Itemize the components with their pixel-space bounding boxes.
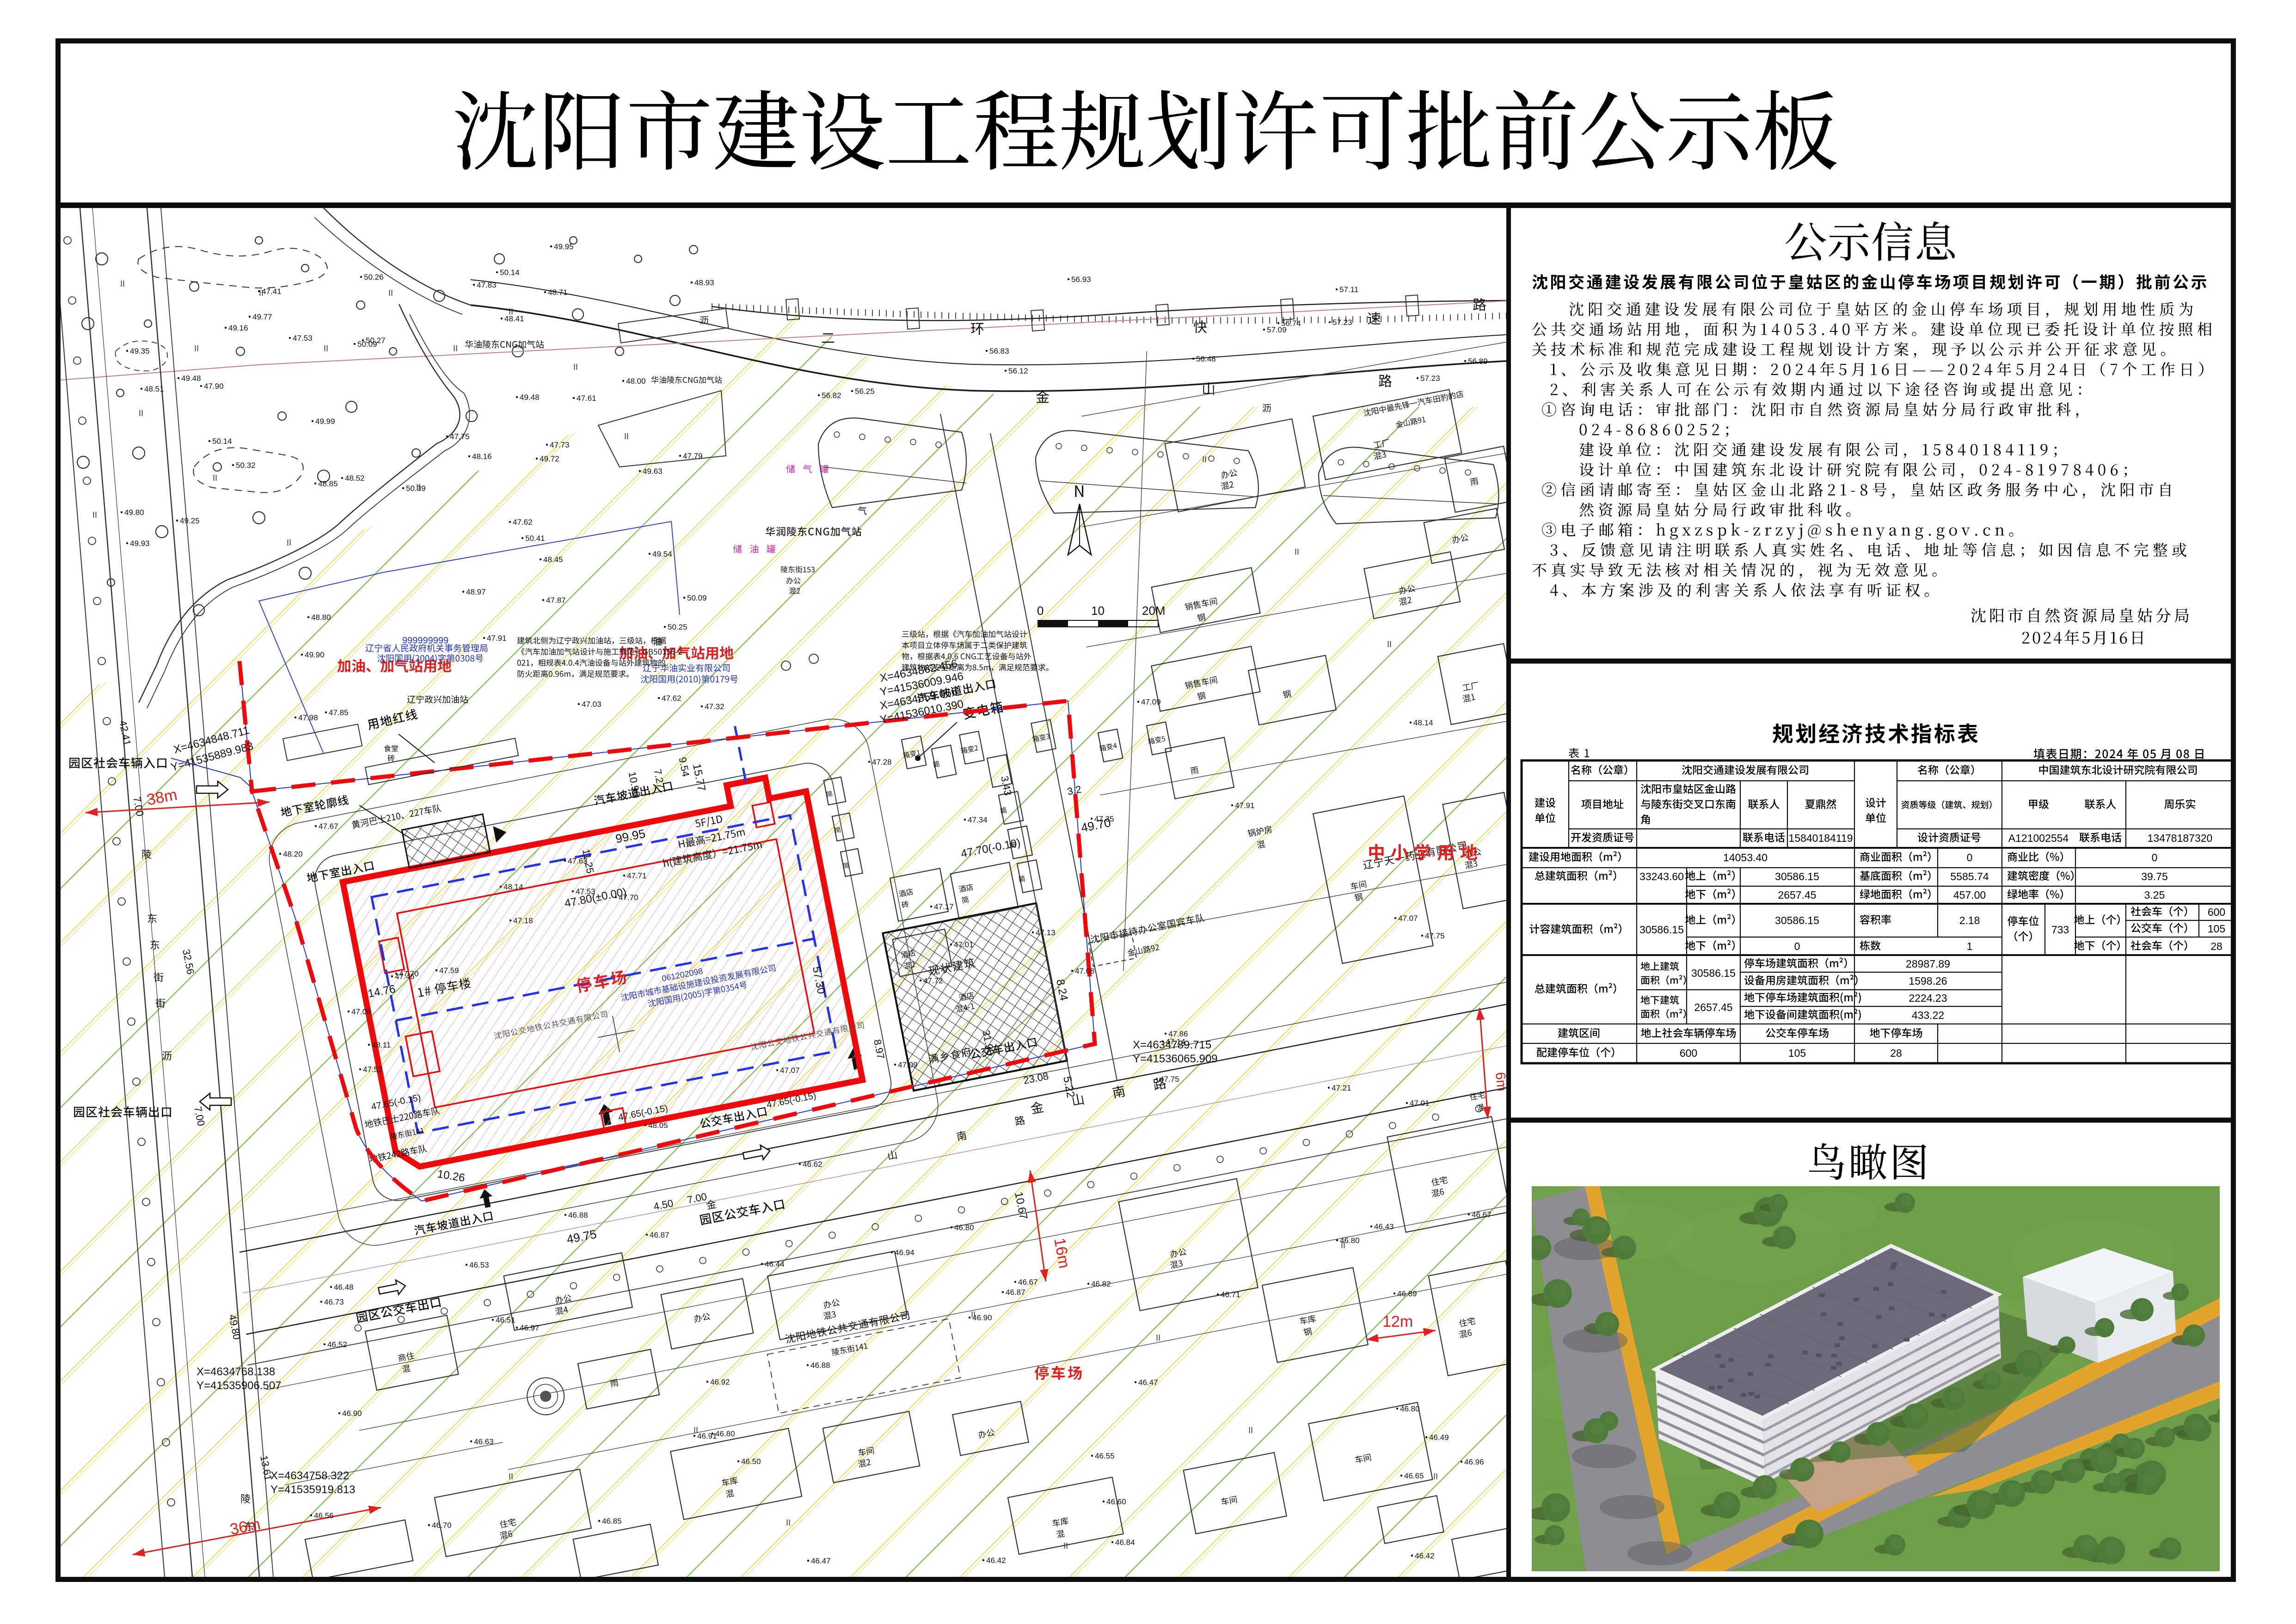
svg-text:46.91: 46.91: [697, 1432, 717, 1440]
svg-text:14053.40: 14053.40: [1723, 852, 1768, 864]
svg-text:49.77: 49.77: [252, 313, 272, 321]
svg-text:X=4634758.322: X=4634758.322: [270, 1470, 349, 1482]
svg-text:II: II: [624, 432, 629, 441]
svg-text:II: II: [1063, 1541, 1068, 1550]
svg-text:46.51: 46.51: [496, 1316, 516, 1324]
svg-text:48.52: 48.52: [345, 474, 365, 483]
svg-text:47.62: 47.62: [513, 518, 533, 527]
svg-text:47.70: 47.70: [399, 969, 419, 978]
svg-text:48.11: 48.11: [372, 1041, 391, 1049]
svg-text:46.87: 46.87: [650, 1231, 669, 1239]
svg-text:47.70: 47.70: [619, 893, 638, 902]
svg-text:47.28: 47.28: [872, 758, 892, 766]
svg-text:II: II: [509, 307, 513, 316]
svg-text:105: 105: [1788, 1047, 1806, 1059]
svg-text:12m: 12m: [1382, 1313, 1413, 1330]
svg-text:46.55: 46.55: [1095, 1452, 1115, 1460]
svg-text:48.51: 48.51: [144, 385, 164, 393]
svg-text:57.23: 57.23: [1332, 318, 1352, 327]
svg-text:46.85: 46.85: [602, 1517, 622, 1526]
svg-text:28: 28: [2210, 940, 2222, 952]
svg-text:48.97: 48.97: [466, 588, 486, 596]
svg-text:II: II: [92, 510, 97, 520]
svg-text:47.08: 47.08: [351, 1007, 371, 1016]
svg-text:50.27: 50.27: [366, 336, 386, 345]
svg-text:2.18: 2.18: [1959, 914, 1980, 926]
svg-text:56.89: 56.89: [1468, 357, 1488, 366]
svg-text:46.80: 46.80: [954, 1223, 974, 1232]
svg-text:47.32: 47.32: [705, 702, 724, 711]
svg-text:48.80: 48.80: [311, 613, 331, 622]
svg-text:II: II: [1341, 1241, 1345, 1250]
svg-text:49.93: 49.93: [130, 539, 150, 548]
svg-text:46.96: 46.96: [1464, 1458, 1484, 1466]
svg-text:II: II: [694, 1426, 698, 1435]
svg-text:II: II: [971, 1310, 976, 1319]
svg-text:56.74: 56.74: [1281, 319, 1301, 328]
svg-text:46.80: 46.80: [1400, 1404, 1420, 1413]
svg-text:II: II: [509, 1472, 513, 1481]
svg-text:II: II: [1295, 547, 1299, 557]
svg-text:46.56: 46.56: [314, 1511, 334, 1520]
svg-text:47.63: 47.63: [568, 857, 588, 865]
svg-text:46.71: 46.71: [1221, 1290, 1240, 1299]
svg-text:49.95: 49.95: [554, 242, 574, 251]
svg-text:39.75: 39.75: [2141, 870, 2168, 882]
svg-text:II: II: [1202, 455, 1207, 464]
svg-text:46.67: 46.67: [1018, 1278, 1038, 1287]
svg-text:II: II: [139, 409, 143, 418]
svg-text:28: 28: [1890, 1047, 1902, 1059]
svg-text:Y=41535919.813: Y=41535919.813: [270, 1483, 356, 1496]
svg-text:46.60: 46.60: [1106, 1497, 1126, 1506]
svg-text:46.88: 46.88: [568, 1211, 588, 1220]
svg-text:30586.15: 30586.15: [1775, 870, 1819, 882]
svg-text:0: 0: [1967, 852, 1973, 864]
svg-text:13478187320: 13478187320: [2148, 832, 2213, 844]
svg-text:II: II: [453, 344, 458, 353]
svg-text:46.49: 46.49: [1429, 1433, 1449, 1442]
svg-text:2224.23: 2224.23: [1909, 992, 1947, 1004]
svg-text:47.53: 47.53: [576, 887, 595, 896]
svg-text:733: 733: [2051, 924, 2069, 936]
svg-text:47.75: 47.75: [1160, 1075, 1179, 1084]
svg-text:Y=41536065.909: Y=41536065.909: [1133, 1053, 1218, 1065]
svg-text:48.05: 48.05: [648, 1121, 668, 1130]
svg-text:48.41: 48.41: [504, 314, 524, 323]
svg-text:48.45: 48.45: [543, 555, 563, 564]
svg-text:46.89: 46.89: [1397, 1289, 1417, 1298]
svg-text:46.47: 46.47: [811, 1557, 831, 1565]
svg-text:47.08: 47.08: [1075, 967, 1095, 975]
svg-text:50.32: 50.32: [236, 461, 256, 470]
svg-text:49.48: 49.48: [520, 393, 540, 402]
svg-text:47.35: 47.35: [1094, 815, 1114, 823]
svg-text:46.84: 46.84: [1115, 1538, 1135, 1547]
svg-text:II: II: [1156, 1333, 1160, 1342]
svg-text:46.62: 46.62: [803, 1160, 823, 1169]
svg-text:48.93: 48.93: [694, 278, 714, 287]
svg-text:48.71: 48.71: [548, 288, 568, 297]
svg-text:47.91: 47.91: [1235, 801, 1255, 810]
svg-text:X=4634768.138: X=4634768.138: [196, 1366, 275, 1378]
svg-text:46.92: 46.92: [710, 1378, 730, 1386]
svg-text:47.52: 47.52: [363, 1065, 383, 1074]
svg-text:II: II: [388, 288, 393, 298]
svg-text:49.99: 49.99: [315, 417, 335, 426]
svg-text:47.61: 47.61: [577, 394, 596, 403]
svg-text:47.86: 47.86: [1168, 1030, 1188, 1038]
svg-text:46.70: 46.70: [432, 1521, 452, 1530]
svg-text:47.07: 47.07: [1398, 914, 1418, 923]
svg-text:49.72: 49.72: [540, 454, 559, 463]
svg-text:0: 0: [1037, 604, 1044, 618]
svg-text:28987.89: 28987.89: [1906, 958, 1950, 970]
svg-text:56.93: 56.93: [1071, 275, 1091, 284]
svg-text:56.82: 56.82: [822, 391, 841, 400]
svg-text:47.41: 47.41: [262, 287, 282, 296]
svg-text:46.50: 46.50: [741, 1457, 761, 1466]
svg-text:50.14: 50.14: [212, 437, 232, 446]
svg-text:46.44: 46.44: [765, 1260, 785, 1269]
svg-text:II: II: [786, 1518, 791, 1527]
svg-text:50.14: 50.14: [500, 268, 520, 277]
svg-text:II: II: [120, 279, 125, 288]
svg-text:46.67: 46.67: [1472, 1210, 1492, 1219]
svg-text:56.12: 56.12: [1008, 367, 1028, 375]
svg-text:56.83: 56.83: [989, 347, 1009, 355]
svg-text:47.09: 47.09: [1141, 698, 1161, 706]
svg-text:47.90: 47.90: [204, 382, 224, 391]
svg-text:5585.74: 5585.74: [1950, 870, 1989, 882]
svg-text:49.63: 49.63: [643, 467, 663, 476]
svg-text:47.59: 47.59: [439, 966, 459, 975]
svg-text:47.17: 47.17: [934, 902, 954, 911]
svg-text:II: II: [1387, 640, 1392, 649]
svg-text:48.85: 48.85: [318, 479, 338, 488]
svg-text:47.62: 47.62: [662, 694, 681, 703]
svg-text:46.73: 46.73: [324, 1298, 344, 1306]
svg-text:II: II: [259, 288, 264, 298]
svg-text:47.34: 47.34: [968, 815, 988, 824]
svg-text:46.42: 46.42: [986, 1556, 1006, 1565]
svg-text:50.25: 50.25: [668, 623, 688, 631]
svg-text:57.23: 57.23: [1420, 374, 1440, 383]
svg-text:46.88: 46.88: [810, 1361, 830, 1370]
svg-text:47.14: 47.14: [1166, 1037, 1185, 1046]
svg-text:47.71: 47.71: [627, 871, 647, 880]
svg-text:46.87: 46.87: [1006, 1288, 1025, 1297]
svg-text:47.53: 47.53: [293, 334, 313, 343]
svg-text:48.14: 48.14: [503, 882, 523, 891]
svg-text:47.67: 47.67: [319, 822, 338, 831]
svg-text:II: II: [324, 344, 328, 353]
svg-text:20M: 20M: [1142, 604, 1166, 618]
svg-text:10: 10: [1091, 604, 1105, 618]
svg-text:50.26: 50.26: [364, 273, 384, 282]
svg-text:48.14: 48.14: [1413, 718, 1433, 727]
svg-text:0: 0: [1794, 940, 1800, 952]
svg-text:46.63: 46.63: [474, 1437, 494, 1446]
svg-text:46.52: 46.52: [327, 1340, 347, 1349]
svg-text:46.90: 46.90: [342, 1409, 362, 1418]
svg-text:47.75: 47.75: [450, 432, 470, 441]
svg-text:999999999: 999999999: [402, 636, 448, 646]
svg-text:49.35: 49.35: [130, 347, 150, 355]
svg-text:105: 105: [2208, 923, 2225, 935]
svg-text:50.09: 50.09: [687, 594, 707, 602]
svg-text:47.87: 47.87: [546, 596, 566, 605]
svg-text:49.80: 49.80: [124, 508, 144, 517]
svg-text:46.97: 46.97: [520, 1324, 540, 1332]
svg-text:57.11: 57.11: [1339, 285, 1358, 294]
svg-text:47.07: 47.07: [780, 1066, 800, 1075]
svg-text:30586.15: 30586.15: [1639, 924, 1684, 936]
svg-text:1: 1: [1967, 940, 1973, 952]
svg-text:46.53: 46.53: [469, 1261, 489, 1269]
svg-text:47.18: 47.18: [513, 916, 533, 925]
svg-text:2657.45: 2657.45: [1694, 1001, 1732, 1013]
svg-text:47.09: 47.09: [898, 1060, 918, 1069]
svg-text:15840184119: 15840184119: [1789, 832, 1853, 844]
svg-text:47.85: 47.85: [329, 708, 349, 717]
svg-text:46.42: 46.42: [1415, 1551, 1435, 1560]
svg-text:II: II: [416, 483, 421, 492]
svg-text:47.72: 47.72: [923, 976, 943, 985]
svg-text:0: 0: [2152, 852, 2158, 864]
svg-text:46.47: 46.47: [1138, 1378, 1158, 1387]
svg-text:46.48: 46.48: [334, 1283, 354, 1292]
svg-text:46.82: 46.82: [1091, 1280, 1111, 1288]
svg-text:49.54: 49.54: [652, 550, 672, 558]
svg-text:47.79: 47.79: [683, 452, 703, 460]
svg-text:47.75: 47.75: [1425, 932, 1445, 940]
svg-text:47.13: 47.13: [1036, 928, 1056, 937]
svg-text:2657.45: 2657.45: [1778, 889, 1816, 901]
svg-text:46.94: 46.94: [895, 1248, 915, 1257]
svg-text:47.01: 47.01: [954, 940, 974, 949]
svg-text:56.48: 56.48: [1196, 355, 1216, 363]
svg-text:48.00: 48.00: [626, 377, 646, 386]
svg-text:47.03: 47.03: [582, 700, 602, 709]
svg-text:48.20: 48.20: [283, 850, 303, 858]
svg-text:49.16: 49.16: [228, 324, 248, 332]
svg-text:II: II: [1433, 1472, 1438, 1481]
svg-text:30586.15: 30586.15: [1775, 914, 1819, 926]
svg-text:56.25: 56.25: [855, 387, 875, 396]
svg-text:47.21: 47.21: [1332, 1084, 1351, 1092]
svg-text:47.91: 47.91: [487, 634, 507, 643]
svg-text:33243.60: 33243.60: [1639, 870, 1684, 882]
svg-text:A121002554: A121002554: [2008, 832, 2069, 844]
svg-text:433.22: 433.22: [1912, 1009, 1944, 1021]
svg-text:46.80: 46.80: [715, 1429, 735, 1438]
svg-text:47.01: 47.01: [1410, 1099, 1430, 1108]
svg-text:II: II: [213, 473, 217, 483]
svg-text:47.83: 47.83: [477, 281, 497, 289]
svg-text:457.00: 457.00: [1953, 889, 1986, 901]
svg-text:47.98: 47.98: [298, 713, 318, 722]
svg-text:3.25: 3.25: [2144, 889, 2165, 901]
svg-text:II: II: [194, 344, 199, 353]
svg-text:II: II: [1248, 1426, 1253, 1435]
svg-text:600: 600: [1680, 1047, 1697, 1059]
svg-text:48.16: 48.16: [472, 452, 492, 461]
svg-text:Y=41535906.507: Y=41535906.507: [196, 1379, 282, 1392]
svg-text:47.73: 47.73: [550, 441, 570, 449]
svg-text:50.41: 50.41: [525, 534, 545, 543]
svg-text:46.43: 46.43: [1374, 1222, 1394, 1231]
svg-text:II: II: [287, 538, 291, 547]
svg-text:49.90: 49.90: [305, 650, 325, 659]
svg-text:49.25: 49.25: [180, 516, 200, 525]
svg-text:30586.15: 30586.15: [1691, 967, 1736, 979]
svg-text:46.65: 46.65: [1404, 1471, 1424, 1480]
svg-text:49.48: 49.48: [181, 374, 201, 383]
svg-text:1598.26: 1598.26: [1909, 975, 1947, 987]
svg-text:II: II: [573, 362, 578, 372]
svg-text:600: 600: [2208, 906, 2225, 918]
